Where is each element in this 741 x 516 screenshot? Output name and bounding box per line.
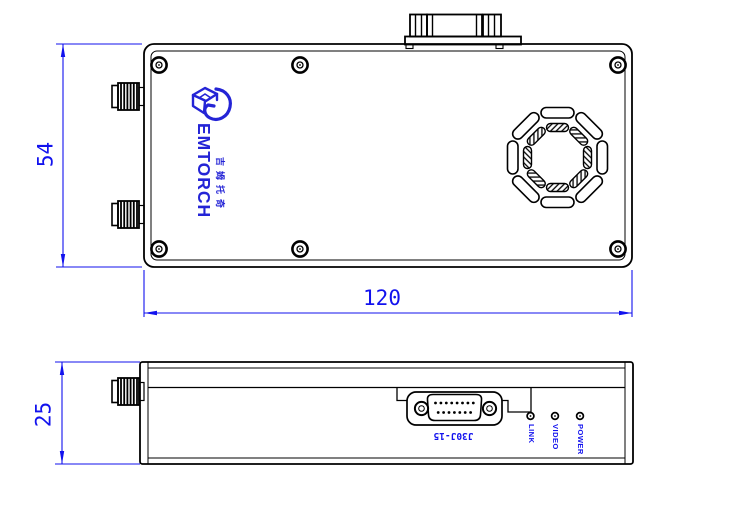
coax-connector-icon	[112, 201, 144, 228]
fan-grille-icon	[508, 108, 608, 208]
screw-icon	[292, 57, 307, 72]
dim-label-height-25: 25	[34, 401, 55, 429]
coax-connector-icon	[112, 83, 144, 110]
drawing-line-art	[0, 0, 741, 516]
gemtorch-logo-icon	[193, 88, 230, 119]
led-icon	[577, 413, 584, 420]
led-indicators	[527, 413, 583, 420]
enclosure-top-inner-line	[151, 51, 625, 260]
connector-type-label: J30J-15	[430, 430, 477, 440]
led-label-link: LINK	[527, 424, 535, 444]
coax-connector-icon	[112, 378, 144, 405]
screw-icon	[151, 241, 166, 256]
enclosure-top-outline	[144, 44, 632, 267]
led-label-video: VIDEO	[551, 424, 559, 450]
dim-label-width-120: 120	[356, 288, 408, 309]
logo-cjk-text: 吉姆托奇	[213, 157, 224, 213]
screw-icon	[610, 57, 625, 72]
led-icon	[552, 413, 559, 420]
led-icon	[527, 413, 534, 420]
dim-label-height-54: 54	[36, 141, 57, 169]
dimension-54	[56, 44, 142, 267]
screw-icon	[292, 241, 307, 256]
led-label-power: POWER	[576, 424, 584, 455]
logo-wordmark: EMTORCH	[194, 123, 213, 218]
technical-drawing-page: 54 120 25 EMTORCH 吉姆托奇 J30J-15 LINK VIDE…	[0, 0, 741, 516]
screw-icon	[151, 57, 166, 72]
screw-icon	[610, 241, 625, 256]
dsub-connector-front-icon	[407, 392, 502, 425]
top-view	[112, 15, 632, 268]
